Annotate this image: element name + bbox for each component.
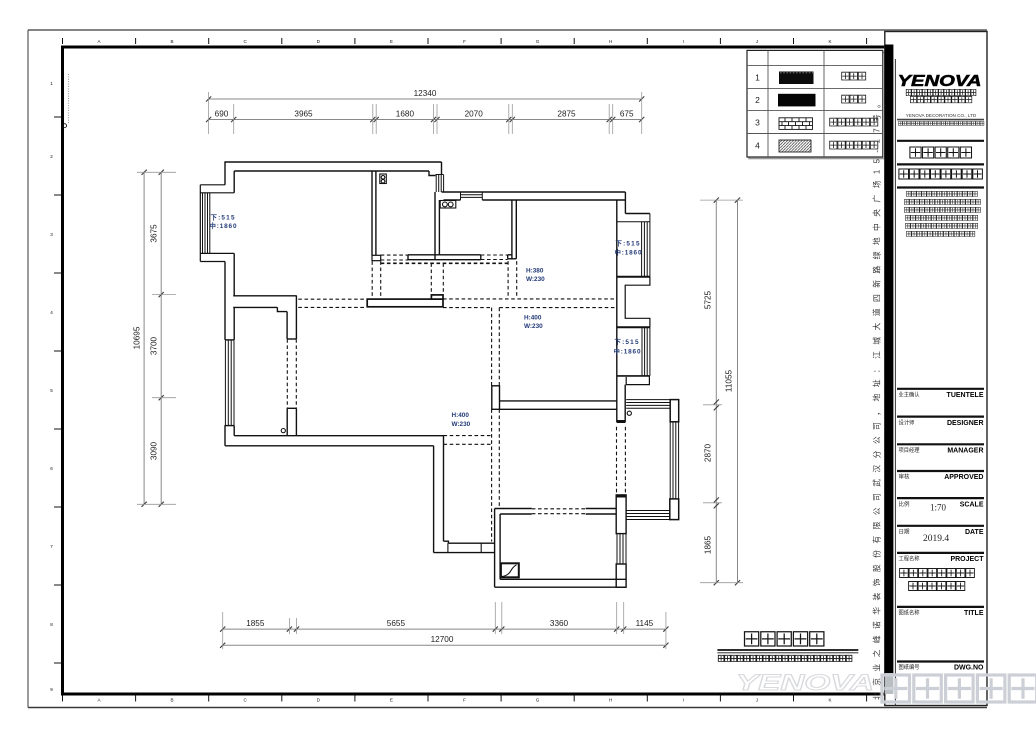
svg-text:H:400: H:400 xyxy=(524,315,542,322)
svg-text:TUENTELE: TUENTELE xyxy=(947,392,984,399)
svg-text:H: H xyxy=(609,39,612,44)
svg-text:J: J xyxy=(756,698,758,703)
svg-text:2019.4: 2019.4 xyxy=(923,534,949,544)
svg-text:E: E xyxy=(390,698,393,703)
svg-text:11055: 11055 xyxy=(725,369,734,392)
svg-text:5725: 5725 xyxy=(704,290,713,309)
svg-text:3965: 3965 xyxy=(294,110,313,119)
svg-text:F: F xyxy=(463,698,466,703)
svg-text:DWG.NO: DWG.NO xyxy=(954,665,984,672)
svg-text:H:400: H:400 xyxy=(452,412,470,419)
svg-text:比例: 比例 xyxy=(899,500,910,508)
svg-text:W:230: W:230 xyxy=(452,421,471,428)
svg-text:DESIGNER: DESIGNER xyxy=(947,420,984,427)
svg-text:下:515: 下:515 xyxy=(616,240,640,248)
svg-text:3675: 3675 xyxy=(150,224,159,243)
svg-text:F: F xyxy=(463,39,466,44)
svg-text:H:380: H:380 xyxy=(526,268,544,275)
svg-text:3700: 3700 xyxy=(150,336,159,355)
svg-text:2: 2 xyxy=(50,154,53,159)
svg-text:4: 4 xyxy=(755,141,760,151)
svg-text:中:1860: 中:1860 xyxy=(210,221,237,230)
svg-text:1: 1 xyxy=(755,73,760,83)
svg-text:I: I xyxy=(683,698,684,703)
svg-text:3360: 3360 xyxy=(550,619,569,628)
svg-text:SCALE: SCALE xyxy=(960,501,984,508)
svg-text:MANAGER: MANAGER xyxy=(947,448,983,455)
svg-text:H: H xyxy=(609,698,612,703)
svg-text:675: 675 xyxy=(620,110,634,119)
svg-text:设计师: 设计师 xyxy=(899,418,915,426)
svg-text:E: E xyxy=(390,39,393,44)
svg-text:中:1860: 中:1860 xyxy=(615,248,642,257)
svg-text:3: 3 xyxy=(755,118,760,128)
svg-text:J: J xyxy=(756,39,758,44)
svg-text:下:515: 下:515 xyxy=(211,214,235,222)
svg-text:7: 7 xyxy=(50,544,53,549)
svg-text:1855: 1855 xyxy=(246,619,265,628)
svg-text:PROJECT: PROJECT xyxy=(950,556,984,563)
svg-text:中:1860: 中:1860 xyxy=(614,347,641,356)
svg-text:1: 1 xyxy=(50,81,53,86)
svg-text:4: 4 xyxy=(50,310,53,315)
svg-text:B: B xyxy=(171,698,174,703)
svg-text:2: 2 xyxy=(755,95,760,105)
svg-text:690: 690 xyxy=(215,110,229,119)
svg-text:APPROVED: APPROVED xyxy=(944,474,983,481)
svg-text:YENOVA: YENOVA xyxy=(736,670,874,695)
svg-text:TITLE: TITLE xyxy=(964,610,984,617)
svg-text:图纸名称: 图纸名称 xyxy=(899,609,920,617)
svg-text:12340: 12340 xyxy=(414,89,437,98)
svg-text:5655: 5655 xyxy=(387,619,406,628)
svg-text:9: 9 xyxy=(50,687,53,692)
svg-text:5: 5 xyxy=(50,388,53,393)
svg-text:2070: 2070 xyxy=(465,110,484,119)
svg-text:10695: 10695 xyxy=(133,326,142,349)
svg-text:8: 8 xyxy=(50,622,53,627)
svg-text:B: B xyxy=(171,39,174,44)
svg-text:YENOVA DECORATION CO., LTD: YENOVA DECORATION CO., LTD xyxy=(906,113,977,118)
svg-text:1865: 1865 xyxy=(704,535,713,554)
svg-text:3090: 3090 xyxy=(150,441,159,460)
svg-text:I: I xyxy=(683,39,684,44)
svg-text:图纸编号: 图纸编号 xyxy=(899,663,920,671)
svg-text:2870: 2870 xyxy=(704,443,713,462)
svg-text:1680: 1680 xyxy=(396,110,415,119)
svg-text:1:70: 1:70 xyxy=(930,503,947,513)
svg-text:日期: 日期 xyxy=(899,529,910,536)
svg-text:下:515: 下:515 xyxy=(615,338,639,346)
svg-text:工程名称: 工程名称 xyxy=(899,555,920,563)
svg-text:1145: 1145 xyxy=(636,619,654,628)
svg-text:6: 6 xyxy=(50,466,53,471)
svg-text:G: G xyxy=(536,698,540,703)
svg-text:2875: 2875 xyxy=(557,110,576,119)
svg-text:项目经理: 项目经理 xyxy=(899,446,920,454)
svg-text:3: 3 xyxy=(50,232,53,237)
svg-text:G: G xyxy=(536,39,540,44)
svg-text:W:230: W:230 xyxy=(526,276,545,283)
svg-text:业主确认: 业主确认 xyxy=(899,391,920,399)
svg-text:审核: 审核 xyxy=(899,473,910,481)
svg-text:W:230: W:230 xyxy=(524,323,543,330)
svg-text:YENOVA: YENOVA xyxy=(898,73,982,90)
svg-text:12700: 12700 xyxy=(431,635,454,644)
svg-text:DATE: DATE xyxy=(965,529,984,536)
